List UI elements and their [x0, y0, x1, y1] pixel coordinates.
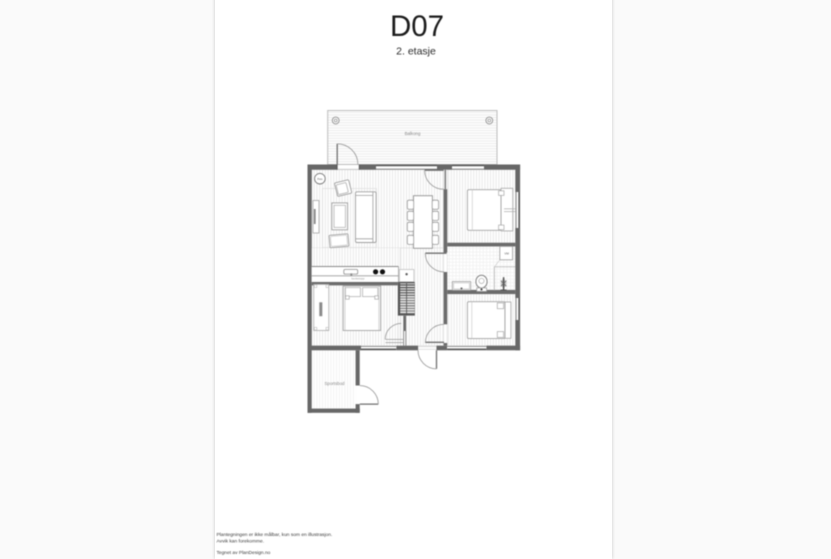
svg-text:VM: VM	[504, 251, 509, 255]
svg-text:Plantegningen er ikke målbar,: Plantegningen er ikke målbar, kun som en…	[217, 531, 333, 538]
svg-text:Balkong: Balkong	[405, 131, 421, 136]
svg-text:benketopp: benketopp	[351, 277, 365, 281]
svg-text:Sportsbod: Sportsbod	[324, 381, 345, 386]
svg-text:Tegnet av PlanDesign.no: Tegnet av PlanDesign.no	[217, 550, 271, 555]
svg-text:D07: D07	[390, 10, 444, 43]
svg-text:Avvik kan forekomme.: Avvik kan forekomme.	[217, 538, 265, 544]
svg-text:Peis: Peis	[317, 177, 323, 181]
svg-text:2. etasje: 2. etasje	[396, 46, 436, 58]
